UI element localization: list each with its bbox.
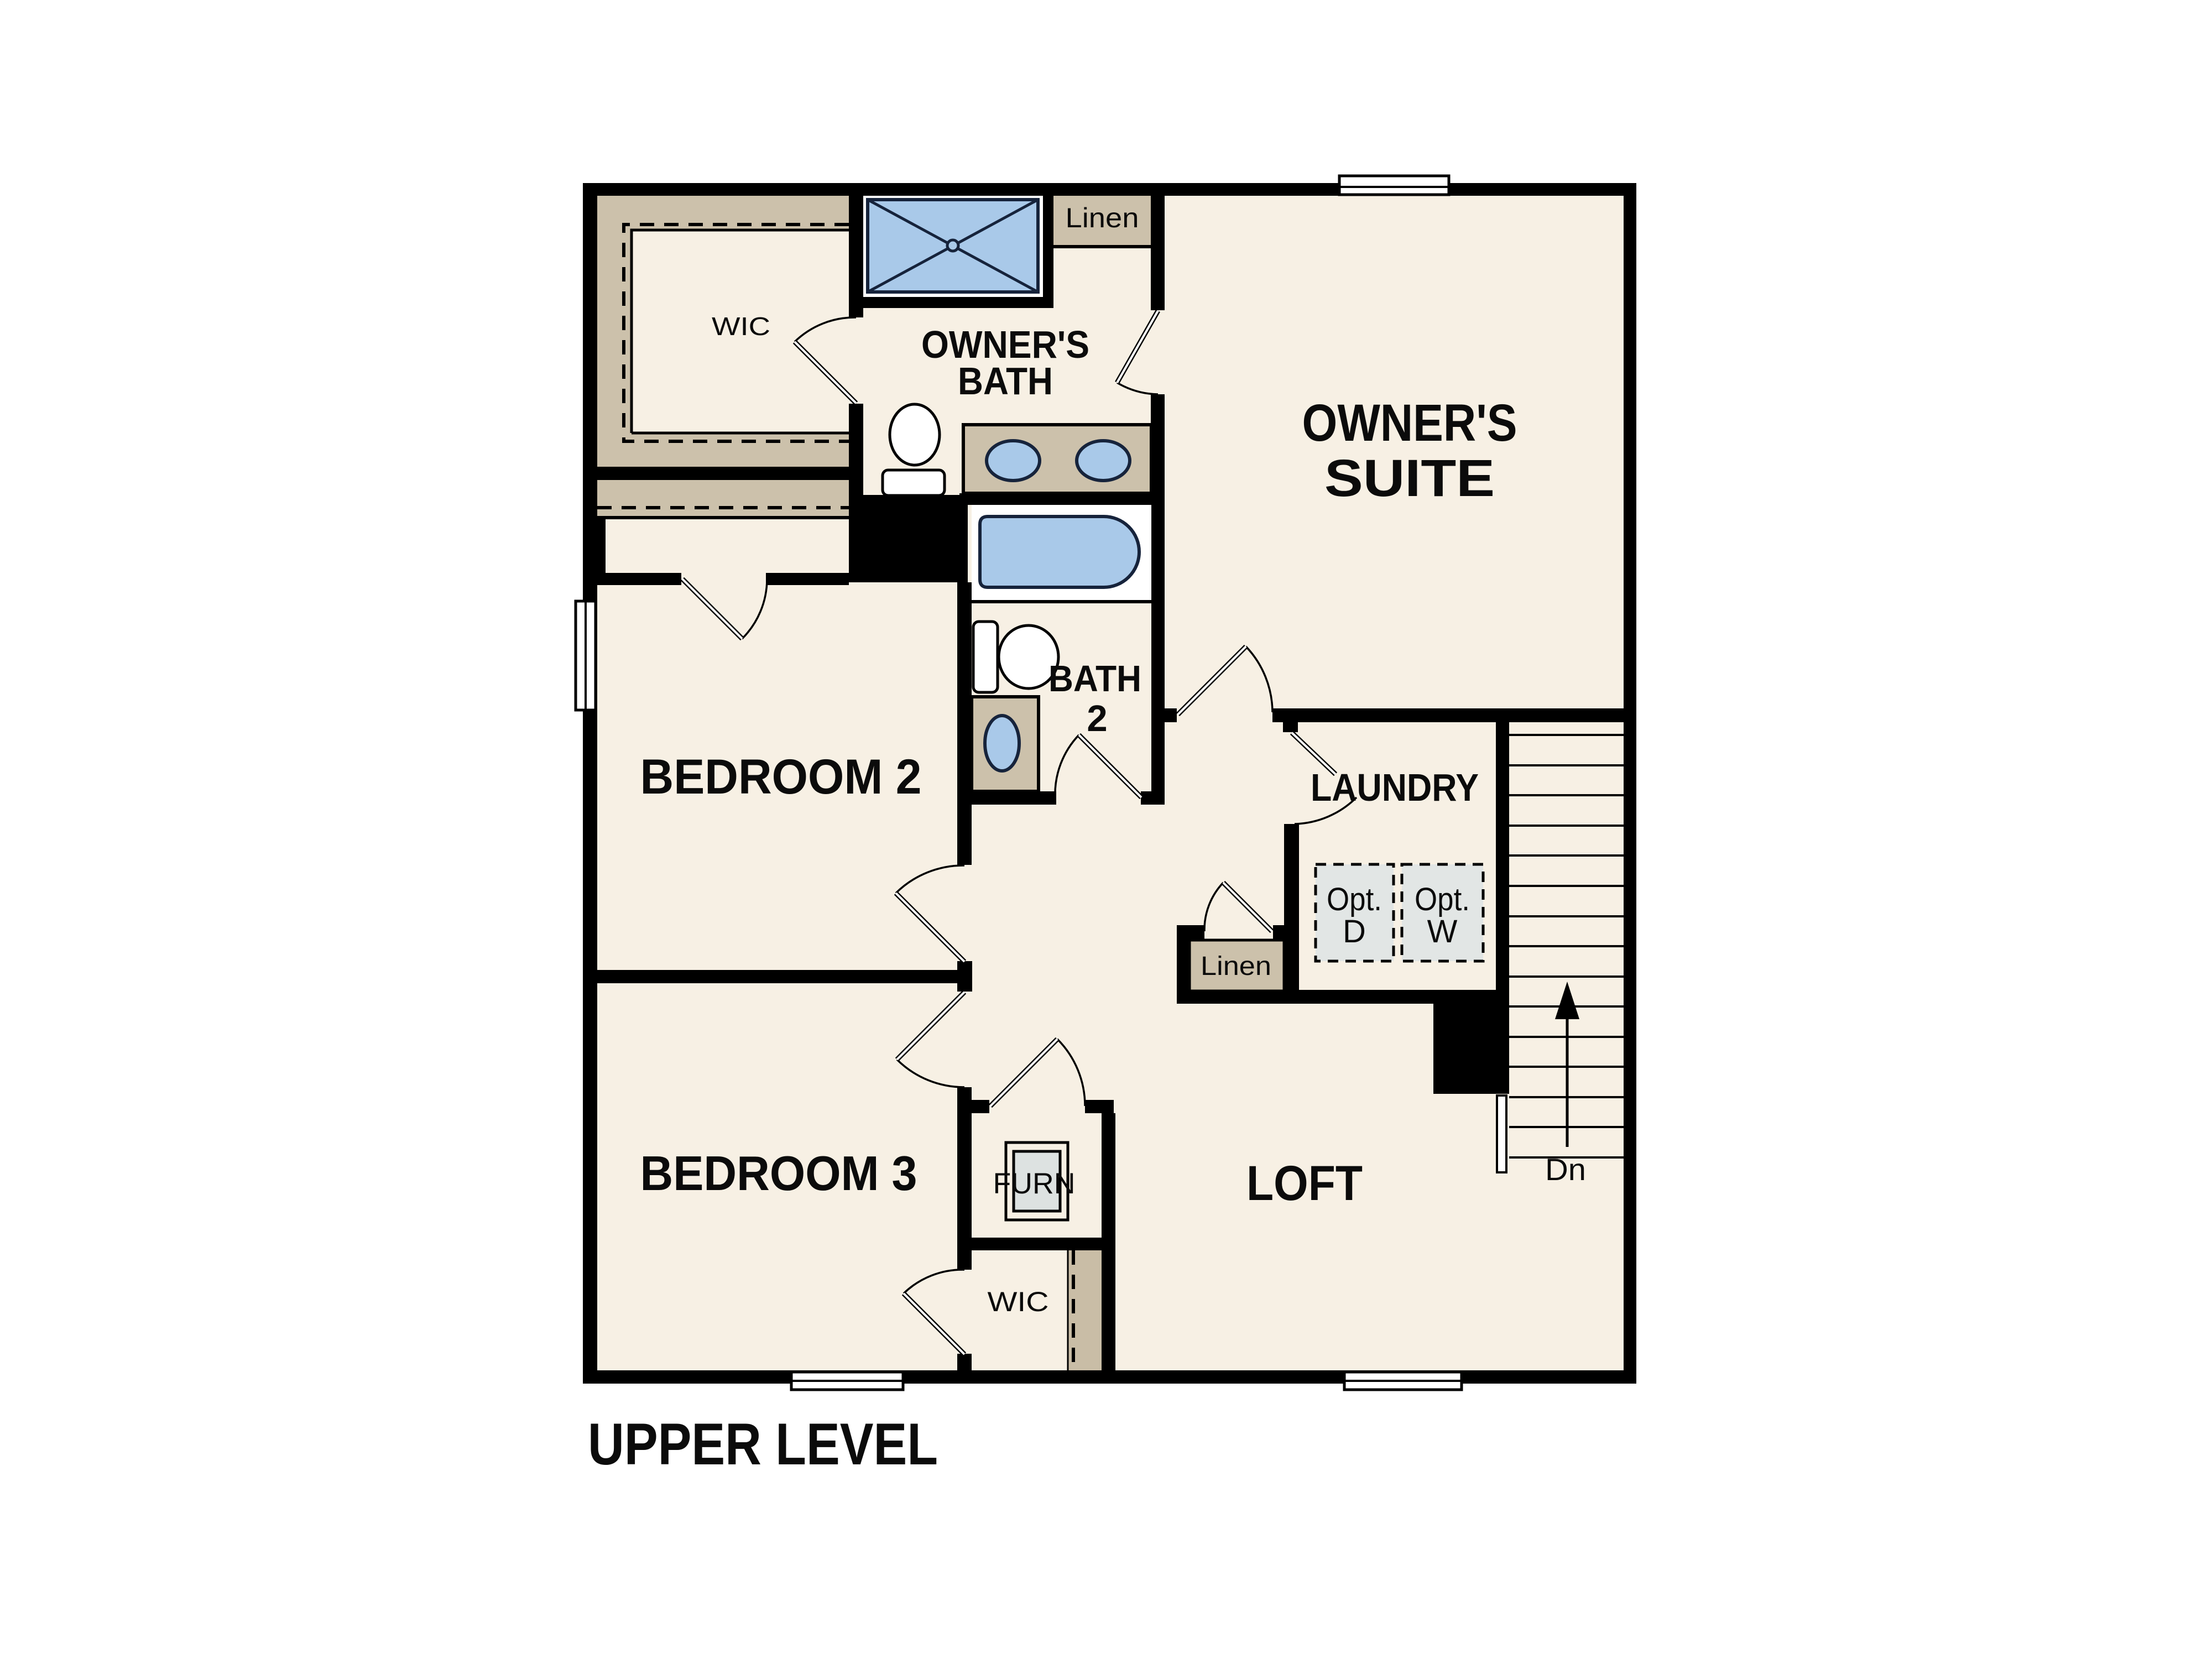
svg-text:BEDROOM 3: BEDROOM 3 bbox=[640, 1146, 917, 1201]
svg-text:BEDROOM 2: BEDROOM 2 bbox=[640, 749, 922, 804]
svg-text:Opt.: Opt. bbox=[1415, 881, 1470, 917]
svg-text:Linen: Linen bbox=[1201, 952, 1271, 981]
svg-text:WIC: WIC bbox=[988, 1286, 1049, 1317]
svg-text:Dn: Dn bbox=[1545, 1152, 1586, 1187]
svg-text:WIC: WIC bbox=[712, 312, 770, 341]
svg-text:BATH: BATH bbox=[958, 359, 1053, 403]
svg-text:2: 2 bbox=[1087, 698, 1107, 739]
svg-text:Linen: Linen bbox=[1066, 202, 1139, 233]
svg-text:BATH: BATH bbox=[1048, 658, 1141, 700]
svg-text:W: W bbox=[1427, 914, 1458, 950]
svg-text:UPPER LEVEL: UPPER LEVEL bbox=[588, 1411, 938, 1477]
svg-text:Opt.: Opt. bbox=[1327, 881, 1382, 917]
svg-text:SUITE: SUITE bbox=[1324, 449, 1495, 508]
svg-text:D: D bbox=[1343, 914, 1366, 950]
svg-text:FURN: FURN bbox=[993, 1167, 1076, 1200]
svg-text:LOFT: LOFT bbox=[1246, 1155, 1363, 1211]
svg-text:OWNER'S: OWNER'S bbox=[1302, 394, 1517, 452]
